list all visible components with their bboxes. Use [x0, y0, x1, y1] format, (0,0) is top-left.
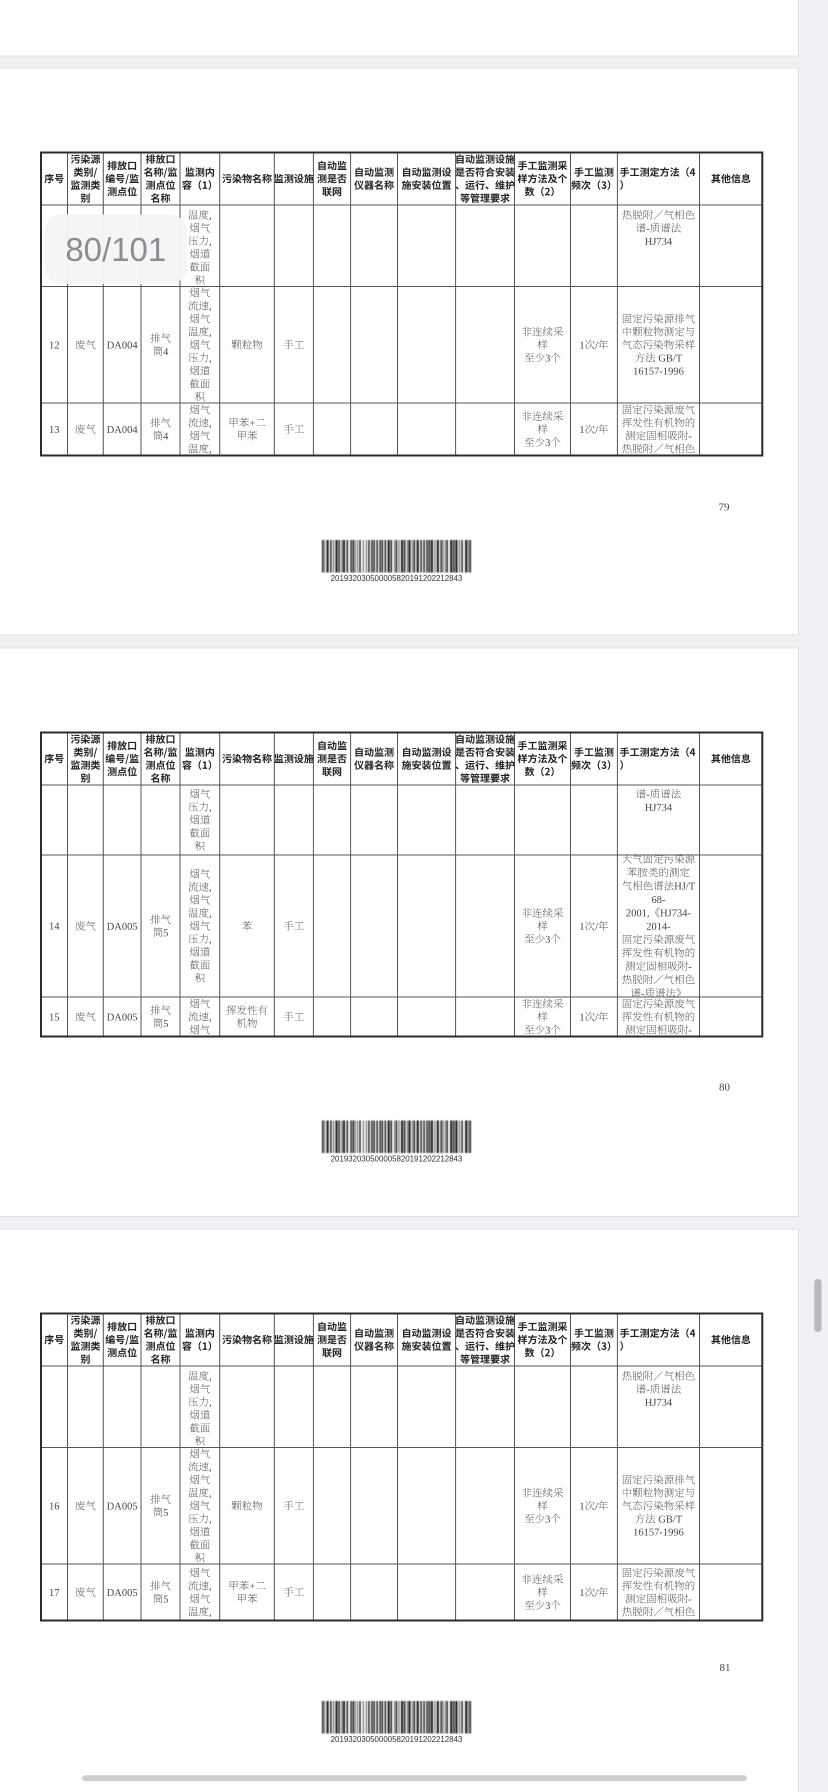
svg-text:201932030500005820191202212843: 201932030500005820191202212843 — [331, 1155, 463, 1164]
svg-text:201932030500005820191202212843: 201932030500005820191202212843 — [331, 1735, 463, 1744]
svg-text:80/101: 80/101 — [65, 231, 166, 268]
svg-text:79: 79 — [719, 502, 731, 514]
svg-text:12: 12 — [49, 340, 60, 351]
svg-text:14: 14 — [49, 922, 60, 933]
svg-text:201932030500005820191202212843: 201932030500005820191202212843 — [331, 574, 463, 583]
svg-text:17: 17 — [49, 1588, 60, 1599]
svg-text:13: 13 — [49, 425, 60, 436]
svg-text:80: 80 — [719, 1082, 731, 1094]
svg-text:16: 16 — [49, 1501, 60, 1512]
svg-text:15: 15 — [49, 1012, 60, 1023]
svg-text:81: 81 — [720, 1662, 731, 1674]
